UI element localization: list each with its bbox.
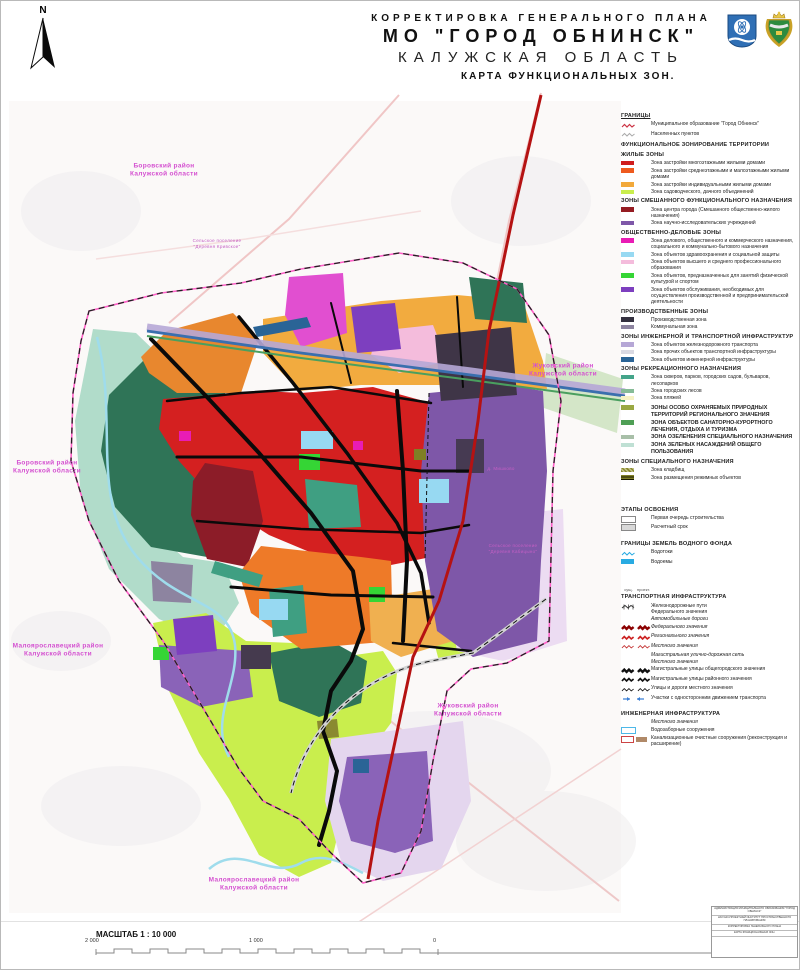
road2-swatch bbox=[621, 685, 651, 694]
legend-item-label: Зона объектов железнодорожного транспорт… bbox=[651, 342, 797, 348]
legend-item-label: ЗОНА ОБЪЕКТОВ САНАТОРНО-КУРОРТНОГО ЛЕЧЕН… bbox=[651, 420, 797, 434]
fill-swatch bbox=[621, 395, 651, 400]
legend-item: Зона городских лесов bbox=[621, 388, 797, 394]
legend-section-title: ИНЖЕНЕРНАЯ ИНФРАСТРУКТУРА bbox=[621, 711, 797, 718]
fill-swatch bbox=[621, 442, 651, 447]
legend-item-label: Зона застройки многоэтажными жилыми дома… bbox=[651, 160, 797, 166]
legend-item: Автомобильные дороги bbox=[621, 616, 797, 622]
fill-swatch bbox=[621, 324, 651, 329]
legend-item-label: Участки с односторонним движением трансп… bbox=[651, 695, 797, 701]
legend-item: ЗОНЫ ОСОБО ОХРАНЯЕМЫХ ПРИРОДНЫХ ТЕРРИТОР… bbox=[621, 405, 797, 419]
fill-swatch bbox=[621, 349, 651, 354]
legend-item-label: Магистральные улицы районного значения bbox=[651, 676, 797, 682]
legend-column-headers: сущ.проект. bbox=[621, 587, 797, 592]
legend-item: Зона кладбищ bbox=[621, 467, 797, 473]
road2-swatch bbox=[621, 643, 651, 652]
legend-item-label: Улицы и дороги местного значения bbox=[651, 685, 797, 691]
legend-section-title: ЗОНЫ РЕКРЕАЦИОННОГО НАЗНАЧЕНИЯ bbox=[621, 366, 797, 373]
legend-item-label: Зона кладбищ bbox=[651, 467, 797, 473]
legend-item: Водоемы bbox=[621, 559, 797, 565]
legend-item: Магистральные улицы общегородского значе… bbox=[621, 666, 797, 675]
stamp-row: АДМИНИСТРАЦИЯ МУНИЦИПАЛЬНОГО ОБРАЗОВАНИЯ… bbox=[712, 907, 797, 916]
legend-item: Регионального значения bbox=[621, 633, 797, 642]
map-sheet: N КОРРЕКТИРОВКА ГЕНЕРАЛЬНОГО ПЛАНА МО "Г… bbox=[0, 0, 800, 970]
road2-swatch bbox=[621, 633, 651, 642]
box-swatch bbox=[621, 515, 651, 523]
legend-item-label: Зона размещения режимных объектов bbox=[651, 475, 797, 481]
legend-item-label: Муниципальное образование "Город Обнинск… bbox=[651, 121, 797, 127]
kaluga-coat-of-arms-icon bbox=[763, 11, 795, 49]
legend-section: ГРАНИЦЫ ЗЕМЕЛЬ ВОДНОГО ФОНДАВодотокиВодо… bbox=[621, 541, 797, 565]
legend-item-label: Зона объектов инженерной инфраструктуры bbox=[651, 357, 797, 363]
legend-item-label: Канализационные очистные сооружения (рек… bbox=[651, 735, 797, 748]
legend-item: Зона объектов обслуживания, необходимых … bbox=[621, 287, 797, 306]
legend-section: ЖИЛЫЕ ЗОНЫЗона застройки многоэтажными ж… bbox=[621, 152, 797, 195]
legend-item-label: Зона городских лесов bbox=[651, 388, 797, 394]
scale-label-0: 0 bbox=[433, 938, 436, 944]
map-label: Сельское поселение "Деревня Кривское" bbox=[193, 238, 242, 250]
stamp-row: НАУЧНО-ПРОЕКТНЫЙ ИНСТИТУТ ПРОСТРАНСТВЕНН… bbox=[712, 916, 797, 925]
legend-item: Зона центра города (Смешанного обществен… bbox=[621, 207, 797, 220]
road2-swatch bbox=[621, 666, 651, 675]
legend-item: Производственная зона bbox=[621, 317, 797, 323]
fill-swatch bbox=[621, 374, 651, 379]
scale-bar bbox=[89, 944, 789, 958]
legend-item: Муниципальное образование "Город Обнинск… bbox=[621, 121, 797, 130]
legend-item: Зона застройки индивидуальными жилыми до… bbox=[621, 182, 797, 188]
hatch-swatch bbox=[621, 467, 651, 472]
fill-swatch bbox=[621, 220, 651, 225]
legend-item: Зона прочих объектов транспортной инфрас… bbox=[621, 349, 797, 355]
fill-swatch bbox=[621, 252, 651, 257]
legend-item-label: Зона делового, общественного и коммерчес… bbox=[651, 238, 797, 251]
legend-section-title: ЖИЛЫЕ ЗОНЫ bbox=[621, 152, 797, 159]
zigzag-swatch bbox=[621, 549, 651, 558]
legend-section-title: ЗОНЫ ИНЖЕНЕРНОЙ И ТРАНСПОРТНОЙ ИНФРАСТРУ… bbox=[621, 334, 797, 341]
legend-item: ЗОНА ОЗЕЛЕНЕНИЯ СПЕЦИАЛЬНОГО НАЗНАЧЕНИЯ bbox=[621, 434, 797, 441]
legend-section-title: ЗОНЫ СПЕЦИАЛЬНОГО НАЗНАЧЕНИЯ bbox=[621, 459, 797, 466]
legend-section-title: ФУНКЦИОНАЛЬНОЕ ЗОНИРОВАНИЕ ТЕРРИТОРИИ bbox=[621, 142, 797, 149]
zigzag-swatch bbox=[621, 131, 651, 140]
legend-section: ЗОНЫ РЕКРЕАЦИОННОГО НАЗНАЧЕНИЯЗона сквер… bbox=[621, 366, 797, 402]
legend-section-title: ГРАНИЦЫ ЗЕМЕЛЬ ВОДНОГО ФОНДА bbox=[621, 541, 797, 548]
legend-item: Зона делового, общественного и коммерчес… bbox=[621, 238, 797, 251]
oneway-swatch bbox=[621, 695, 651, 704]
fill-swatch bbox=[621, 342, 651, 347]
road2-swatch bbox=[621, 676, 651, 685]
legend-item: Первая очередь строительства bbox=[621, 515, 797, 523]
legend-section: ГРАНИЦЫМуниципальное образование "Город … bbox=[621, 113, 797, 139]
title-stamp: АДМИНИСТРАЦИЯ МУНИЦИПАЛЬНОГО ОБРАЗОВАНИЯ… bbox=[711, 906, 798, 958]
legend-item: Магистральные улицы районного значения bbox=[621, 676, 797, 685]
legend-section: ЗОНЫ ИНЖЕНЕРНОЙ И ТРАНСПОРТНОЙ ИНФРАСТРУ… bbox=[621, 334, 797, 363]
legend-item-label: Зона садоводческого, дачного объединений bbox=[651, 189, 797, 195]
legend-item-label: Местного значения bbox=[651, 719, 797, 725]
legend-item-label: Водозаборные сооружения bbox=[651, 727, 797, 733]
fill-swatch bbox=[621, 189, 651, 194]
legend-item-label: Зона застройки индивидуальными жилыми до… bbox=[651, 182, 797, 188]
title-block: КОРРЕКТИРОВКА ГЕНЕРАЛЬНОГО ПЛАНА МО "ГОР… bbox=[331, 13, 751, 82]
legend-item-label: Зона объектов здравоохранения и социальн… bbox=[651, 252, 797, 258]
legend-item: Зона застройки среднеэтажными и малоэтаж… bbox=[621, 168, 797, 181]
scale-label-1000: 1 000 bbox=[249, 938, 263, 944]
stripes-swatch bbox=[621, 475, 651, 480]
map-label: Малоярославецкий район Калужской области bbox=[209, 877, 300, 894]
legend-section-title: ЗОНЫ СМЕШАННОГО ФУНКЦИОНАЛЬНОГО НАЗНАЧЕН… bbox=[621, 198, 797, 205]
fill-swatch bbox=[621, 420, 651, 425]
legend-item-label: Первая очередь строительства bbox=[651, 515, 797, 521]
legend-item-label: Водотоки bbox=[651, 549, 797, 555]
footer: ГЕО МАСШТАБ 1 : 10 000 2 000 1 000 0 2 0… bbox=[1, 921, 799, 970]
stamp-row: КАРТА ФУНКЦИОНАЛЬНЫХ ЗОН. bbox=[712, 931, 797, 937]
boxline-swatch bbox=[621, 727, 651, 735]
legend-item-label: Расчетный срок bbox=[651, 524, 797, 530]
fill-swatch bbox=[621, 388, 651, 393]
legend-item-label: Железнодорожные пути Федерального значен… bbox=[651, 603, 797, 616]
legend-item-label: Зона центра города (Смешанного обществен… bbox=[651, 207, 797, 220]
legend-section-title: ЭТАПЫ ОСВОЕНИЯ bbox=[621, 507, 797, 514]
scale-label-2000-left: 2 000 bbox=[85, 938, 99, 944]
map-label: Боровский район Калужской области bbox=[130, 163, 198, 180]
legend-item: Железнодорожные пути Федерального значен… bbox=[621, 603, 797, 616]
box-swatch bbox=[621, 524, 651, 532]
legend-section: ОБЩЕСТВЕННО-ДЕЛОВЫЕ ЗОНЫЗона делового, о… bbox=[621, 230, 797, 306]
road2-swatch bbox=[621, 624, 651, 633]
legend-item: Коммунальная зона bbox=[621, 324, 797, 330]
legend-item-label: ЗОНЫ ОСОБО ОХРАНЯЕМЫХ ПРИРОДНЫХ ТЕРРИТОР… bbox=[651, 405, 797, 419]
legend-section-title: ПРОИЗВОДСТВЕННЫЕ ЗОНЫ bbox=[621, 309, 797, 316]
legend-section: сущ.проект.ТРАНСПОРТНАЯ ИНФРАСТРУКТУРАЖе… bbox=[621, 587, 797, 703]
legend-section: ИНЖЕНЕРНАЯ ИНФРАСТРУКТУРАМестного значен… bbox=[621, 711, 797, 748]
fill-swatch bbox=[621, 259, 651, 264]
legend-item: Канализационные очистные сооружения (рек… bbox=[621, 735, 797, 748]
legend-item-label: Коммунальная зона bbox=[651, 324, 797, 330]
north-letter: N bbox=[23, 5, 63, 16]
north-arrow-icon bbox=[25, 16, 61, 70]
fill-swatch bbox=[621, 287, 651, 292]
legend-item: Зона застройки многоэтажными жилыми дома… bbox=[621, 160, 797, 166]
legend-item: ЗОНА ОБЪЕКТОВ САНАТОРНО-КУРОРТНОГО ЛЕЧЕН… bbox=[621, 420, 797, 434]
north-arrow: N bbox=[23, 5, 63, 71]
legend-item-label: ЗОНА ОЗЕЛЕНЕНИЯ СПЕЦИАЛЬНОГО НАЗНАЧЕНИЯ bbox=[651, 434, 797, 441]
legend-section: ЗОНЫ ОСОБО ОХРАНЯЕМЫХ ПРИРОДНЫХ ТЕРРИТОР… bbox=[621, 405, 797, 456]
water-swatch bbox=[621, 559, 651, 564]
map-label: Жуковский район Калужской области bbox=[434, 703, 502, 720]
legend-item-label: Зона объектов высшего и среднего професс… bbox=[651, 259, 797, 272]
legend-item-label: Зона объектов обслуживания, необходимых … bbox=[651, 287, 797, 306]
legend-item: Зона объектов здравоохранения и социальн… bbox=[621, 252, 797, 258]
fill-swatch bbox=[621, 238, 651, 243]
legend-item-label: Федерального значения bbox=[651, 624, 797, 630]
legend-item: Участки с односторонним движением трансп… bbox=[621, 695, 797, 704]
map-label: д. Мишково bbox=[487, 466, 514, 472]
legend-item: Водотоки bbox=[621, 549, 797, 558]
legend-item-label: Местного значения bbox=[651, 643, 797, 649]
legend-item: Магистральная улично-дорожная сеть Местн… bbox=[621, 652, 797, 665]
legend-item-label: Зона пляжей bbox=[651, 395, 797, 401]
fill-swatch bbox=[621, 207, 651, 212]
none-swatch bbox=[621, 652, 651, 657]
title-line-2: МО "ГОРОД ОБНИНСК" bbox=[331, 26, 751, 47]
legend-item-label: Населенных пунктов bbox=[651, 131, 797, 137]
legend-item-label: Водоемы bbox=[651, 559, 797, 565]
legend-item: Зона объектов, предназначенных для занят… bbox=[621, 273, 797, 286]
fill-swatch bbox=[621, 357, 651, 362]
fill-swatch bbox=[621, 317, 651, 322]
fill-swatch bbox=[621, 434, 651, 439]
legend-item: Зона садоводческого, дачного объединений bbox=[621, 189, 797, 195]
legend-item: Зона объектов высшего и среднего професс… bbox=[621, 259, 797, 272]
title-line-4: КАРТА ФУНКЦИОНАЛЬНЫХ ЗОН. bbox=[461, 71, 751, 82]
obninsk-coat-of-arms-icon bbox=[727, 14, 757, 48]
legend-item: Зона размещения режимных объектов bbox=[621, 475, 797, 481]
legend-item-label: Магистральные улицы общегородского значе… bbox=[651, 666, 797, 672]
legend-item: Водозаборные сооружения bbox=[621, 727, 797, 735]
legend-item: Федерального значения bbox=[621, 624, 797, 633]
legend-item: Зона научно-исследовательских учреждений bbox=[621, 220, 797, 226]
map-label: Боровский район Калужской области bbox=[13, 460, 81, 477]
boxline2-swatch bbox=[621, 735, 651, 743]
zigzag-swatch bbox=[621, 121, 651, 130]
legend-section-title: ТРАНСПОРТНАЯ ИНФРАСТРУКТУРА bbox=[621, 594, 797, 601]
legend-item: Зона скверов, парков, городских садов, б… bbox=[621, 374, 797, 387]
fill-swatch bbox=[621, 160, 651, 165]
legend-item-label: Зона застройки среднеэтажными и малоэтаж… bbox=[651, 168, 797, 181]
legend-section-title: ОБЩЕСТВЕННО-ДЕЛОВЫЕ ЗОНЫ bbox=[621, 230, 797, 237]
legend-section: ЗОНЫ СПЕЦИАЛЬНОГО НАЗНАЧЕНИЯЗона кладбищ… bbox=[621, 459, 797, 481]
legend-item: ЗОНА ЗЕЛЕНЫХ НАСАЖДЕНИЙ ОБЩЕГО ПОЛЬЗОВАН… bbox=[621, 442, 797, 456]
legend-item: Местного значения bbox=[621, 719, 797, 725]
legend-section: ПРОИЗВОДСТВЕННЫЕ ЗОНЫПроизводственная зо… bbox=[621, 309, 797, 331]
legend-item: Улицы и дороги местного значения bbox=[621, 685, 797, 694]
legend-item: Расчетный срок bbox=[621, 524, 797, 532]
fill-swatch bbox=[621, 182, 651, 187]
fill-swatch bbox=[621, 405, 651, 410]
legend-section: ЭТАПЫ ОСВОЕНИЯПервая очередь строительст… bbox=[621, 507, 797, 531]
legend-item: Зона пляжей bbox=[621, 395, 797, 401]
map-label: Малоярославецкий район Калужской области bbox=[13, 643, 104, 660]
legend-item: Зона объектов железнодорожного транспорт… bbox=[621, 342, 797, 348]
legend-section: ЗОНЫ СМЕШАННОГО ФУНКЦИОНАЛЬНОГО НАЗНАЧЕН… bbox=[621, 198, 797, 226]
title-line-3: КАЛУЖСКАЯ ОБЛАСТЬ bbox=[331, 49, 751, 66]
legend-section-title: ГРАНИЦЫ bbox=[621, 113, 797, 120]
scale-text: МАСШТАБ 1 : 10 000 bbox=[96, 930, 176, 939]
legend-item: Зона объектов инженерной инфраструктуры bbox=[621, 357, 797, 363]
legend-item-label: Регионального значения bbox=[651, 633, 797, 639]
legend-item-label: Зона объектов, предназначенных для занят… bbox=[651, 273, 797, 286]
legend-item-label: Автомобильные дороги bbox=[651, 616, 797, 622]
legend-section: ФУНКЦИОНАЛЬНОЕ ЗОНИРОВАНИЕ ТЕРРИТОРИИ bbox=[621, 142, 797, 149]
legend-item-label: Зона скверов, парков, городских садов, б… bbox=[651, 374, 797, 387]
none-swatch bbox=[621, 616, 651, 621]
legend-item-label: Производственная зона bbox=[651, 317, 797, 323]
map-label: Жуковский район Калужской области bbox=[529, 363, 597, 380]
fill-swatch bbox=[621, 273, 651, 278]
fill-swatch bbox=[621, 168, 651, 173]
title-line-1: КОРРЕКТИРОВКА ГЕНЕРАЛЬНОГО ПЛАНА bbox=[331, 13, 751, 24]
legend-item-label: Магистральная улично-дорожная сеть Местн… bbox=[651, 652, 797, 665]
legend-item-label: Зона прочих объектов транспортной инфрас… bbox=[651, 349, 797, 355]
rail-swatch bbox=[621, 603, 651, 612]
none-swatch bbox=[621, 719, 651, 724]
legend-item: Местного значения bbox=[621, 643, 797, 652]
legend: ГРАНИЦЫМуниципальное образование "Город … bbox=[621, 111, 797, 751]
legend-item-label: ЗОНА ЗЕЛЕНЫХ НАСАЖДЕНИЙ ОБЩЕГО ПОЛЬЗОВАН… bbox=[651, 442, 797, 456]
legend-item-label: Зона научно-исследовательских учреждений bbox=[651, 220, 797, 226]
map-label: Сельское поселение "Деревня Кабицыно" bbox=[489, 543, 538, 555]
legend-item: Населенных пунктов bbox=[621, 131, 797, 140]
